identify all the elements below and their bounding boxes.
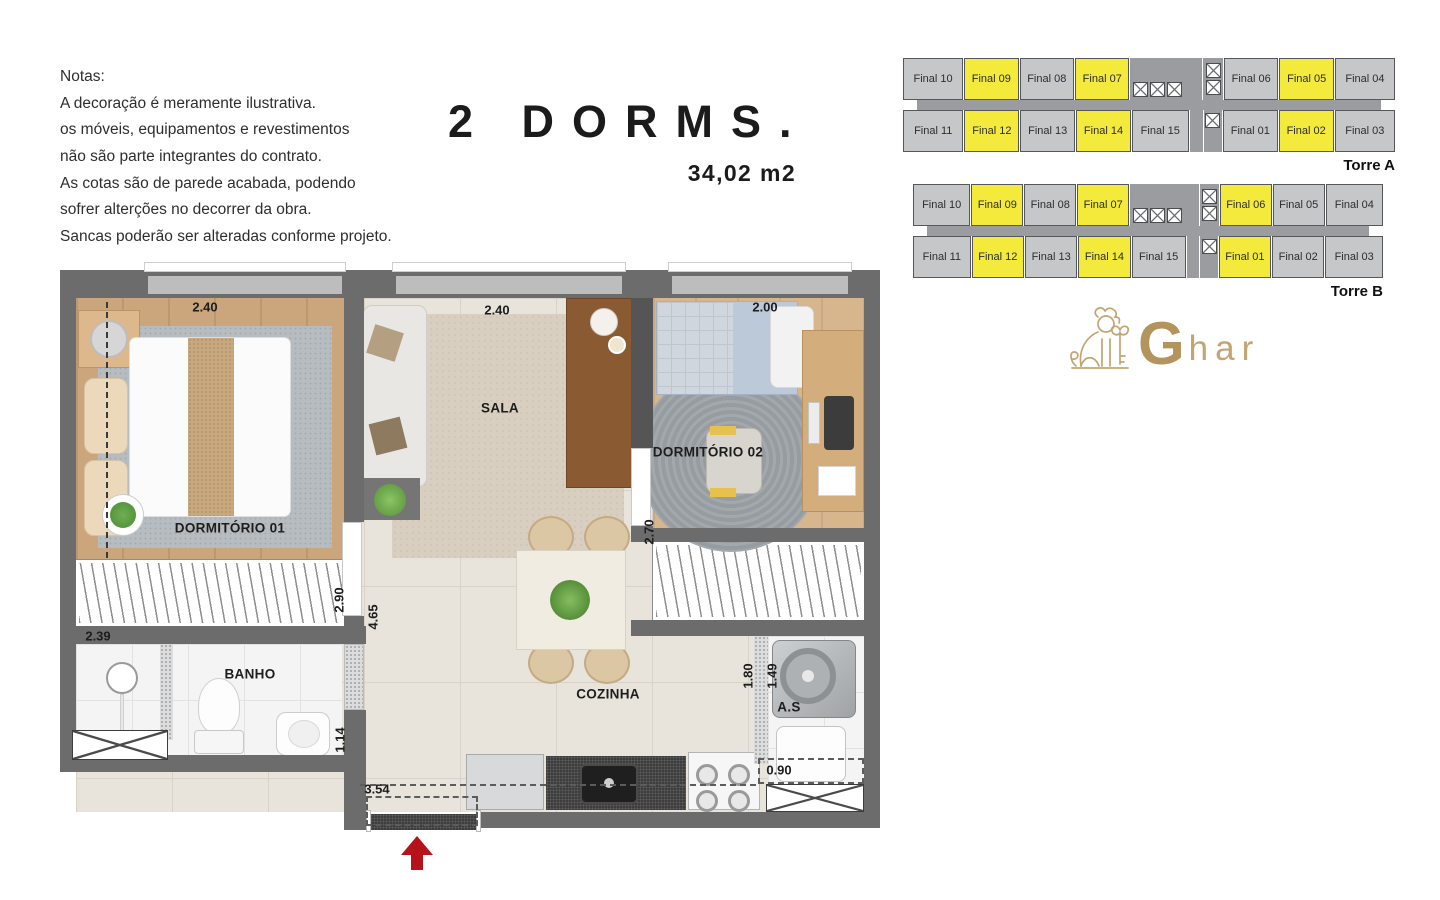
burner-3 [696, 790, 718, 812]
lamp-small [608, 336, 626, 354]
wall-dorm02-bottom-lower [631, 620, 864, 636]
dimension-label: 4.65 [366, 604, 381, 629]
elevator-shaft-icon [1150, 208, 1165, 223]
unit-cell-highlighted: Final 12 [972, 236, 1024, 278]
lamp-large [590, 308, 618, 336]
unit-cell: Final 04 [1335, 58, 1395, 100]
unit-cell: Final 13 [1020, 110, 1075, 152]
elevator-core [1203, 58, 1223, 100]
sink-faucet [604, 778, 614, 788]
room-label: BANHO [225, 667, 276, 682]
door-bathroom-frosted [344, 644, 364, 710]
unit-cell-highlighted: Final 06 [1220, 184, 1272, 226]
elevator-shaft-icon [1133, 82, 1148, 97]
burner-2 [728, 764, 750, 786]
note-line: As cotas são de parede acabada, podendo [60, 171, 420, 198]
plan-area: 34,02 m2 [448, 160, 818, 187]
burner-4 [728, 790, 750, 812]
unit-cell: Final 13 [1025, 236, 1077, 278]
elevator-shaft-icon [1202, 189, 1217, 204]
tray-decor [90, 320, 128, 358]
window-dorm02 [672, 276, 848, 294]
room-label: A.S [777, 700, 800, 715]
plan-title: 2 DORMS. [448, 96, 818, 148]
table-plant [550, 580, 590, 620]
wall-dorm02-left [631, 298, 653, 448]
elevator-shaft-icon [1133, 208, 1148, 223]
unit-cell: Final 04 [1326, 184, 1383, 226]
tower-row: Final 10Final 09Final 08Final 07Final 06… [913, 184, 1383, 226]
unit-cell: Final 08 [1024, 184, 1076, 226]
elevator-core [1200, 184, 1219, 226]
notes-block: Notas: A decoração é meramente ilustrati… [60, 64, 420, 251]
note-line: os móveis, equipamentos e revestimentos [60, 117, 420, 144]
unit-cell-highlighted: Final 02 [1279, 110, 1334, 152]
shower-head [106, 662, 138, 694]
unit-cell-highlighted: Final 09 [964, 58, 1018, 100]
tower-b-grid: Final 10Final 09Final 08Final 07Final 06… [913, 184, 1383, 278]
title-block: 2 DORMS. 34,02 m2 [448, 96, 818, 187]
notes-title: Notas: [60, 64, 420, 91]
elevator-shaft-icon [1167, 82, 1182, 97]
note-line: Sancas poderão ser alteradas conforme pr… [60, 224, 420, 251]
corridor-gap [1187, 236, 1200, 278]
unit-cell: Final 01 [1223, 110, 1278, 152]
note-line: não são parte integrantes do contrato. [60, 144, 420, 171]
wall-right [864, 270, 880, 828]
plant-dorm01-leaves [110, 502, 136, 528]
brand-logo: G har [1064, 306, 1260, 381]
elevator-core [1200, 236, 1217, 278]
washer-drum-center [802, 670, 814, 682]
note-line: A decoração é meramente ilustrativa. [60, 91, 420, 118]
tower-row: Final 10Final 09Final 08Final 07Final 06… [903, 58, 1395, 100]
dimension-label: 2.39 [85, 629, 110, 644]
shower-glass [160, 644, 173, 740]
note-line: sofrer alterções no decorrer da obra. [60, 197, 420, 224]
kitchen-dashed-line [360, 784, 756, 786]
plant-sala [374, 484, 406, 516]
tower-b-diagram: Final 10Final 09Final 08Final 07Final 06… [913, 184, 1383, 300]
tower-row: Final 11Final 12Final 13Final 14Final 15… [913, 236, 1383, 278]
bed-runner-dorm01 [188, 338, 234, 516]
dimension-label: 1.80 [741, 663, 756, 688]
monitor [824, 396, 854, 450]
room-label: DORMITÓRIO 01 [175, 521, 285, 536]
wall-kitchen-bottom [478, 812, 864, 828]
unit-cell-highlighted: Final 09 [971, 184, 1023, 226]
window-sill-sala [392, 262, 626, 272]
basin-bowl [288, 720, 320, 748]
unit-cell-highlighted: Final 12 [964, 110, 1019, 152]
unit-cell-highlighted: Final 14 [1076, 110, 1131, 152]
dimension-label: 2.00 [752, 300, 777, 315]
brand-text: har [1189, 329, 1261, 369]
elevator-shaft-icon [1206, 63, 1221, 78]
dimension-label: 3.54 [364, 782, 389, 797]
unit-cell: Final 06 [1224, 58, 1278, 100]
door-dorm02 [631, 448, 651, 526]
brand-letter-g: G [1138, 314, 1185, 374]
elevator-shaft-icon [1167, 208, 1182, 223]
window-sill-dorm02 [668, 262, 852, 272]
unit-cell: Final 11 [903, 110, 963, 152]
dimension-label: 1.14 [333, 727, 348, 752]
toilet-tank [194, 730, 244, 754]
window-sala [396, 276, 622, 294]
window-sill-dorm01 [144, 262, 346, 272]
chair-armrest-a [710, 426, 736, 435]
bathroom-window-x [72, 730, 168, 760]
wall-left [60, 270, 76, 772]
dimension-label: 2.40 [484, 303, 509, 318]
closet-louver-dorm01 [76, 560, 346, 626]
unit-cell-highlighted: Final 07 [1077, 184, 1129, 226]
elevator-core [1130, 58, 1202, 100]
unit-cell: Final 05 [1273, 184, 1325, 226]
unit-cell: Final 15 [1132, 236, 1186, 278]
room-label: DORMITÓRIO 02 [653, 445, 763, 460]
paper-sheet [818, 466, 856, 496]
corridor-gap [1190, 110, 1203, 152]
unit-cell: Final 10 [903, 58, 963, 100]
room-label: COZINHA [576, 687, 640, 702]
wall-dorm01-sala [344, 298, 364, 522]
unit-cell: Final 03 [1335, 110, 1395, 152]
dimension-label: 1.49 [765, 663, 780, 688]
dimension-label: 2.40 [192, 300, 217, 315]
unit-cell-highlighted: Final 14 [1078, 236, 1130, 278]
entry-dashed-box [366, 796, 478, 826]
wall-post-bath [344, 616, 364, 644]
desk-chair [706, 428, 762, 494]
wall-dorm02-bottom-upper [631, 528, 864, 542]
entrance-arrow-icon [401, 836, 433, 870]
toilet-bowl [198, 678, 240, 734]
unit-cell-highlighted: Final 01 [1219, 236, 1271, 278]
tower-b-label: Torre B [913, 283, 1383, 300]
window-dorm01 [148, 276, 342, 294]
dimension-label: 0.90 [766, 763, 791, 778]
elevator-core [1204, 110, 1222, 152]
elevator-shaft-icon [1150, 82, 1165, 97]
floor-plan: 2.402.402.00DORMITÓRIO 01SALADORMITÓRIO … [60, 270, 880, 850]
corridor-strip [927, 226, 1369, 236]
quilt-dorm02 [657, 302, 733, 394]
laundry-window-x [766, 784, 864, 812]
tower-row: Final 11Final 12Final 13Final 14Final 15… [903, 110, 1395, 152]
unit-cell-highlighted: Final 05 [1279, 58, 1333, 100]
elevator-shaft-icon [1205, 113, 1220, 128]
projection-dashed-line [106, 302, 108, 558]
lion-with-key-icon [1064, 306, 1144, 381]
elevator-shaft-icon [1202, 206, 1217, 221]
keyboard [808, 402, 820, 444]
elevator-shaft-icon [1206, 80, 1221, 95]
room-label: SALA [481, 401, 519, 416]
notes-lines: A decoração é meramente ilustrativa.os m… [60, 91, 420, 251]
closet-louver-dorm02 [653, 542, 864, 620]
dimension-label: 2.70 [642, 519, 657, 544]
elevator-shaft-icon [1202, 239, 1217, 254]
chair-armrest-b [710, 488, 736, 497]
kitchen-laundry-divider [754, 636, 768, 764]
unit-cell: Final 08 [1020, 58, 1074, 100]
tower-a-diagram: Final 10Final 09Final 08Final 07Final 06… [903, 58, 1395, 174]
elevator-core [1130, 184, 1198, 226]
unit-cell: Final 15 [1132, 110, 1189, 152]
unit-cell: Final 10 [913, 184, 970, 226]
unit-cell: Final 11 [913, 236, 971, 278]
tower-a-label: Torre A [903, 157, 1395, 174]
tower-a-grid: Final 10Final 09Final 08Final 07Final 06… [903, 58, 1395, 152]
unit-cell: Final 02 [1272, 236, 1324, 278]
corridor-strip [917, 100, 1381, 110]
unit-cell-highlighted: Final 07 [1075, 58, 1129, 100]
burner-1 [696, 764, 718, 786]
unit-cell: Final 03 [1325, 236, 1383, 278]
dimension-label: 2.90 [332, 587, 347, 612]
